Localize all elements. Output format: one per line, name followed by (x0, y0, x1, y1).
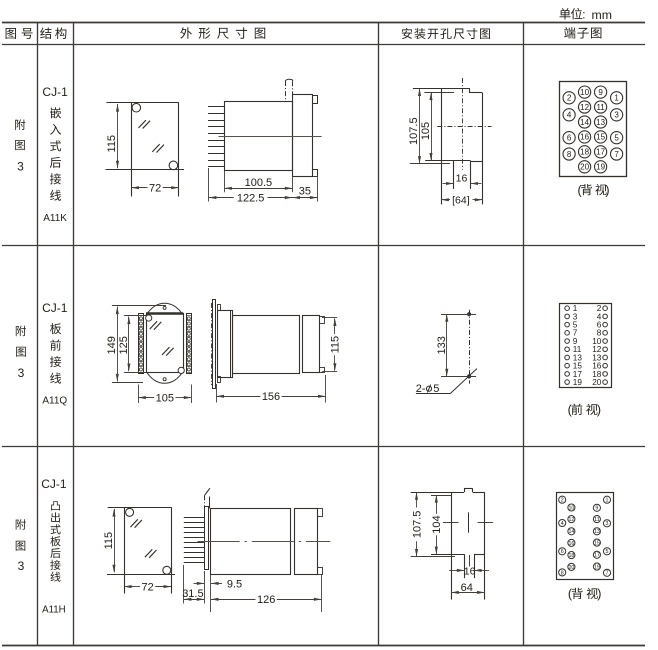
svg-text:11: 11 (596, 103, 605, 112)
svg-text:35: 35 (299, 185, 311, 197)
svg-text:10: 10 (568, 505, 574, 511)
svg-text:7: 7 (606, 571, 609, 577)
svg-text:16: 16 (568, 541, 574, 547)
svg-text:16: 16 (464, 566, 476, 578)
svg-text:19: 19 (596, 163, 605, 172)
svg-text:1: 1 (606, 498, 609, 504)
svg-text:16: 16 (456, 173, 468, 185)
svg-text:[64]: [64] (452, 194, 470, 206)
svg-text:20: 20 (580, 163, 589, 172)
svg-text:): ) (597, 587, 601, 601)
svg-text:2-: 2- (416, 383, 426, 395)
svg-text:115: 115 (106, 135, 118, 153)
svg-text:): ) (597, 403, 601, 417)
svg-text:105: 105 (420, 122, 432, 140)
svg-text::: : (582, 7, 585, 21)
svg-text:17: 17 (594, 553, 600, 559)
svg-text:18: 18 (568, 553, 574, 559)
svg-text:12: 12 (580, 103, 589, 112)
svg-text:11: 11 (594, 517, 600, 523)
svg-text:7: 7 (614, 150, 619, 159)
svg-text:6: 6 (561, 549, 564, 555)
svg-text:20: 20 (568, 565, 574, 571)
svg-text:3: 3 (606, 521, 609, 527)
svg-text:13: 13 (596, 118, 605, 127)
svg-text:107.5: 107.5 (411, 511, 423, 539)
svg-text:15: 15 (594, 540, 600, 546)
svg-text:12: 12 (568, 517, 574, 523)
svg-text:107.5: 107.5 (408, 117, 420, 145)
svg-text:72: 72 (149, 183, 161, 195)
svg-text:CJ-1: CJ-1 (41, 477, 67, 491)
svg-text:125: 125 (118, 336, 130, 354)
svg-text:115: 115 (330, 336, 342, 354)
svg-text:CJ-1: CJ-1 (42, 301, 68, 315)
svg-text:64: 64 (461, 582, 473, 594)
svg-text:): ) (605, 183, 609, 197)
svg-text:31.5: 31.5 (182, 588, 203, 600)
svg-text:122.5: 122.5 (237, 192, 265, 204)
svg-text:A11H: A11H (42, 605, 66, 616)
svg-text:17: 17 (596, 148, 605, 157)
svg-text:8: 8 (561, 570, 564, 576)
svg-text:4: 4 (567, 111, 572, 120)
svg-text:115: 115 (103, 532, 115, 550)
svg-text:8: 8 (567, 150, 572, 159)
svg-text:19: 19 (573, 378, 583, 387)
svg-text:A11Q: A11Q (42, 396, 67, 407)
svg-text:2: 2 (567, 94, 572, 103)
svg-text:20: 20 (592, 378, 602, 387)
svg-text:104: 104 (431, 515, 443, 533)
svg-text:9: 9 (595, 506, 598, 512)
svg-text:5: 5 (614, 134, 619, 143)
svg-text:mm: mm (592, 8, 613, 22)
svg-text:1: 1 (614, 94, 619, 103)
svg-text:9.5: 9.5 (227, 578, 242, 590)
svg-text:6: 6 (567, 134, 572, 143)
svg-text:5: 5 (606, 549, 609, 555)
svg-text:4: 4 (561, 521, 564, 527)
svg-text:16: 16 (580, 133, 589, 142)
svg-text:19: 19 (594, 564, 600, 570)
svg-text:3: 3 (614, 111, 619, 120)
svg-text:14: 14 (568, 529, 574, 535)
svg-text:2: 2 (561, 498, 564, 504)
svg-text:156: 156 (262, 391, 280, 403)
svg-text:13: 13 (594, 529, 600, 535)
svg-text:A11K: A11K (43, 213, 67, 224)
svg-text:15: 15 (596, 133, 605, 142)
svg-text:149: 149 (106, 336, 118, 354)
svg-text:3: 3 (18, 366, 25, 380)
svg-text:9: 9 (598, 88, 603, 97)
svg-text:105: 105 (156, 392, 174, 404)
svg-text:72: 72 (141, 581, 153, 593)
svg-text:5: 5 (433, 383, 439, 395)
svg-text:133: 133 (436, 336, 448, 354)
svg-text:100.5: 100.5 (245, 177, 273, 189)
svg-text:126: 126 (257, 594, 275, 606)
svg-text:18: 18 (580, 148, 589, 157)
svg-text:3: 3 (18, 559, 25, 573)
svg-text:CJ-1: CJ-1 (42, 85, 68, 99)
svg-text:14: 14 (580, 118, 589, 127)
svg-text:10: 10 (580, 88, 589, 97)
svg-text:3: 3 (17, 159, 24, 173)
